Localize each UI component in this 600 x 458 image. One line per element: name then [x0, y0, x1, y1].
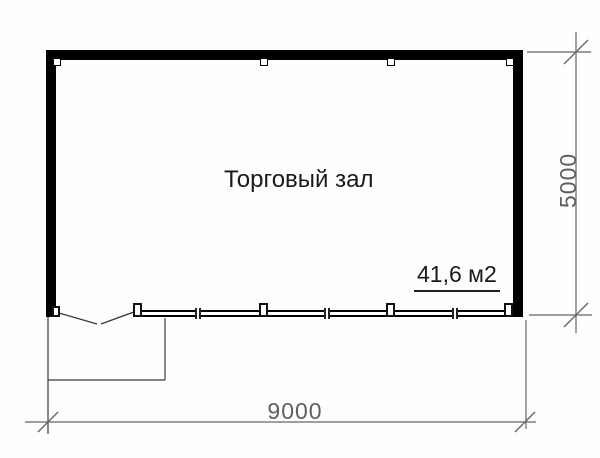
- column-post-top-3: [387, 58, 395, 66]
- window-post-1: [133, 303, 142, 317]
- wall-right: [513, 50, 523, 317]
- door-leaf-line-left: [59, 313, 97, 324]
- column-post-top-4: [506, 58, 514, 66]
- door-jamb-post: [52, 306, 60, 317]
- window-mullion-3: [452, 308, 458, 319]
- window-mullion-1: [195, 308, 201, 319]
- floor-plan-canvas: Торговый зал 41,6 м2 9000 5000: [0, 0, 600, 458]
- window-post-2: [259, 303, 268, 317]
- area-label: 41,6 м2: [414, 261, 500, 292]
- wall-top: [46, 50, 523, 60]
- window-post-4: [504, 303, 513, 317]
- column-post-top-1: [53, 58, 61, 66]
- dim-width-label: 9000: [264, 398, 326, 425]
- window-post-3: [386, 303, 395, 317]
- door-leaf-line-right: [101, 312, 134, 324]
- window-mullion-2: [324, 308, 330, 319]
- drawing-lines-svg: [0, 0, 600, 458]
- dim-height-label: 5000: [555, 154, 581, 208]
- wall-left: [46, 50, 56, 317]
- column-post-top-2: [260, 58, 268, 66]
- room-label: Торговый зал: [224, 166, 373, 194]
